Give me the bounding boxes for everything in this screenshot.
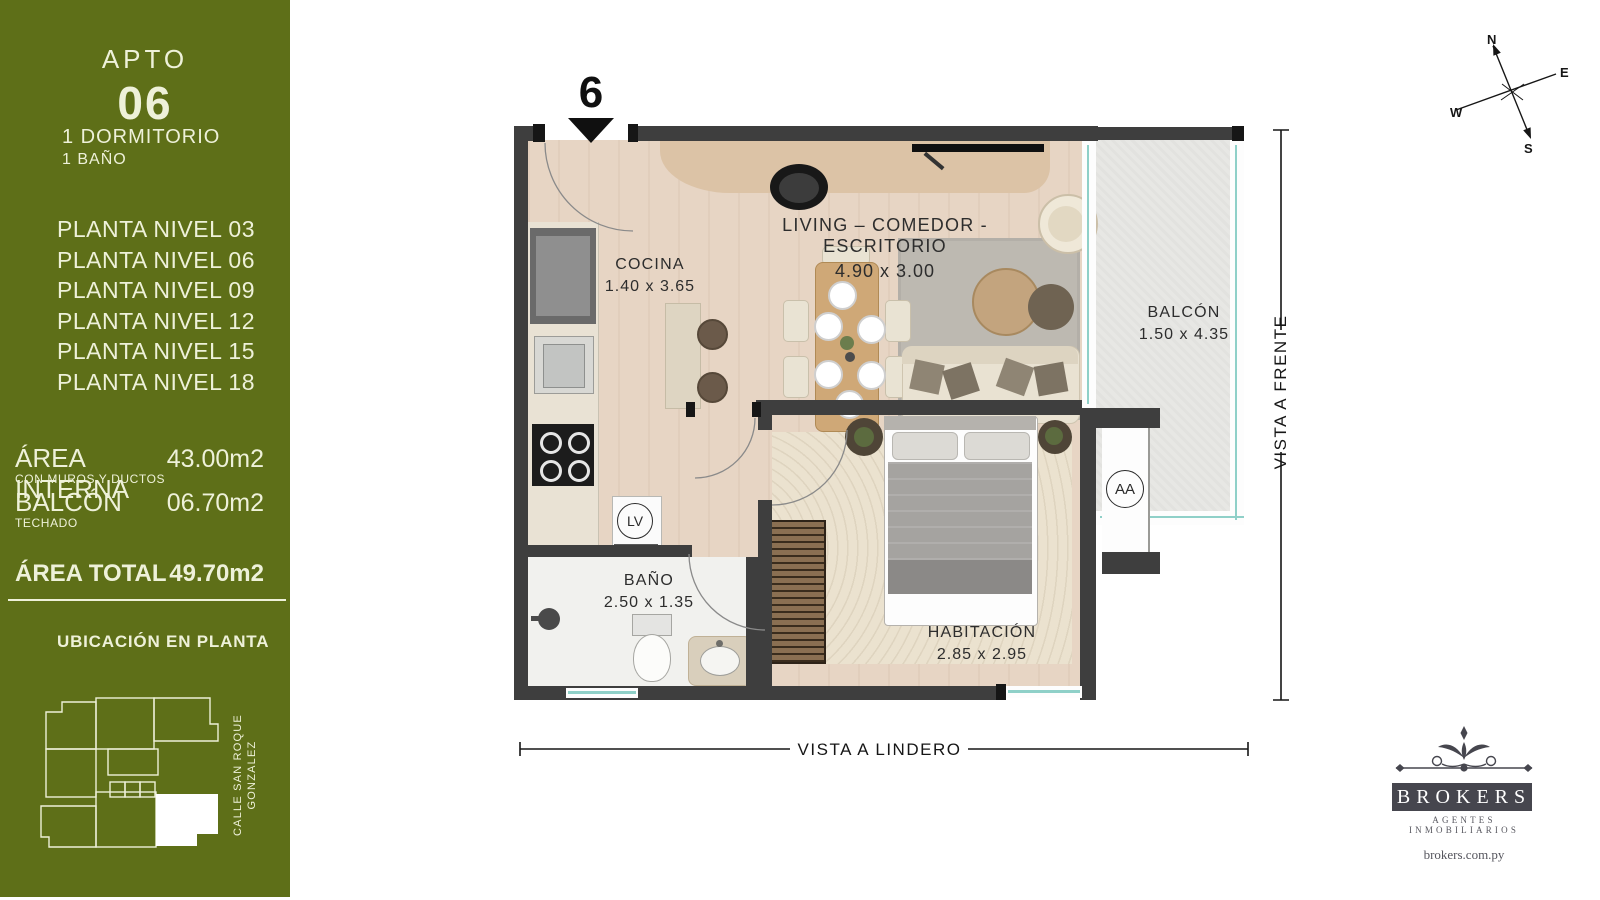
bath-count: 1 BAÑO <box>62 151 127 169</box>
label-bano: BAÑO 2.50 x 1.35 <box>584 572 714 612</box>
street-line1: CALLE SAN ROQUE <box>231 695 245 855</box>
compass-north-arrow-icon <box>1493 44 1501 56</box>
wall-ac-bottom <box>1102 552 1160 574</box>
compass-rose: N E W S <box>1450 32 1569 156</box>
hall-jamb <box>686 402 695 417</box>
bed-headboard <box>884 416 1036 430</box>
window-jamb <box>996 684 1006 700</box>
compass-s: S <box>1524 141 1533 156</box>
sofa-pillow <box>909 359 945 395</box>
bar-stool <box>697 372 728 403</box>
label-cocina: COCINA 1.40 x 3.65 <box>585 256 715 296</box>
balcon-row: BALCÓN 06.70m2 <box>0 487 290 518</box>
toilet-tank <box>632 614 672 636</box>
ac-badge: AA <box>1106 470 1144 508</box>
balcon-label: BALCÓN <box>15 487 122 518</box>
bar-stool <box>697 319 728 350</box>
burner <box>540 432 562 454</box>
area-total-value: 49.70m2 <box>169 560 264 588</box>
apto-number: 06 <box>0 76 290 130</box>
balcony-corner-cap <box>1232 126 1244 141</box>
fridge-top <box>536 236 590 316</box>
level-item: PLANTA NIVEL 15 <box>0 336 290 367</box>
burner <box>568 460 590 482</box>
dining-chair <box>783 356 809 398</box>
entry-jamb <box>533 124 545 142</box>
level-item: PLANTA NIVEL 03 <box>0 214 290 245</box>
wall-balcony-top <box>1098 127 1244 140</box>
level-list: PLANTA NIVEL 03 PLANTA NIVEL 06 PLANTA N… <box>0 214 290 397</box>
level-item: PLANTA NIVEL 12 <box>0 306 290 337</box>
balcony-glass-line <box>1087 145 1089 404</box>
street-label: CALLE SAN ROQUE GONZALEZ <box>231 695 261 855</box>
area-total-row: ÁREA TOTAL 49.70m2 <box>0 560 290 588</box>
room-name: COCINA <box>585 256 715 274</box>
wall-kitchen-bath <box>528 545 692 557</box>
dining-chair <box>885 300 911 342</box>
balcon-sub: TECHADO <box>0 516 78 530</box>
label-balcon: BALCÓN 1.50 x 4.35 <box>1114 304 1254 344</box>
pillow <box>892 432 958 460</box>
faucet <box>716 640 723 647</box>
area-interna-sub: CON MUROS Y DUCTOS <box>0 472 165 486</box>
street-line2: GONZALEZ <box>245 695 259 855</box>
toilet-bowl <box>633 634 671 682</box>
burner <box>568 432 590 454</box>
logo-name: BROKERS <box>1392 783 1532 811</box>
label-habitacion: HABITACIÓN 2.85 x 2.95 <box>902 624 1062 664</box>
sink-basin <box>543 344 585 388</box>
room-name: LIVING – COMEDOR - ESCRITORIO <box>730 215 1040 257</box>
entry-jamb <box>628 124 638 142</box>
room-name: HABITACIÓN <box>902 624 1062 642</box>
area-interna-value: 43.00m2 <box>167 445 264 474</box>
sofa-pillow <box>1034 362 1069 397</box>
wall-living-bedroom <box>756 400 1082 415</box>
kitchen-island <box>665 303 701 409</box>
building-minimap <box>33 694 233 858</box>
tv <box>912 144 1044 152</box>
bedroom-count: 1 DORMITORIO <box>62 126 220 149</box>
bath-window-line <box>568 691 636 694</box>
hall-jamb <box>752 402 761 417</box>
side-table <box>1028 284 1074 330</box>
logo-website: brokers.com.py <box>1392 847 1536 863</box>
room-dims: 2.50 x 1.35 <box>584 594 714 612</box>
room-dims: 4.90 x 3.00 <box>730 261 1040 282</box>
vista-lindero-label: VISTA A LINDERO <box>797 740 962 760</box>
balcony-glass-door <box>1082 141 1096 408</box>
bedroom-window-line <box>1008 690 1080 693</box>
room-dims: 1.50 x 4.35 <box>1114 326 1254 344</box>
plant <box>1045 427 1063 445</box>
sidebar: APTO 06 1 DORMITORIO 1 BAÑO PLANTA NIVEL… <box>0 0 290 897</box>
office-chair-seat <box>779 173 819 203</box>
plant <box>854 427 874 447</box>
label-living: LIVING – COMEDOR - ESCRITORIO 4.90 x 3.0… <box>730 215 1040 282</box>
compass-n: N <box>1487 32 1496 47</box>
room-name: BAÑO <box>584 572 714 590</box>
room-dims: 2.85 x 2.95 <box>902 646 1062 664</box>
burner <box>540 460 562 482</box>
table-plant <box>840 336 854 350</box>
compass-south-arrow-icon <box>1523 127 1531 139</box>
ubicacion-title: UBICACIÓN EN PLANTA <box>57 632 269 652</box>
level-item: PLANTA NIVEL 09 <box>0 275 290 306</box>
highlighted-unit <box>156 794 218 846</box>
table-decor <box>845 352 855 362</box>
vanity-sink <box>700 646 740 676</box>
vista-frente-label: VISTA A FRENTE <box>1271 312 1291 472</box>
wall-hall-bedroom-b <box>758 500 772 686</box>
sidebar-divider <box>8 599 286 601</box>
wall-bath-right <box>746 557 758 686</box>
wall-hall-bedroom-a <box>758 415 772 430</box>
dining-chair <box>783 300 809 342</box>
shower-arm <box>531 616 543 621</box>
unit-number: 6 <box>558 68 624 118</box>
entry-arrow-icon <box>568 118 614 143</box>
level-item: PLANTA NIVEL 18 <box>0 367 290 398</box>
slat-wardrobe <box>766 520 826 664</box>
wall-left <box>514 126 528 700</box>
brokers-logo: BROKERS AGENTES INMOBILIARIOS brokers.co… <box>1392 726 1536 863</box>
room-dims: 1.40 x 3.65 <box>585 278 715 296</box>
plate <box>814 312 843 341</box>
level-item: PLANTA NIVEL 06 <box>0 245 290 276</box>
logo-tagline: AGENTES INMOBILIARIOS <box>1392 815 1536 835</box>
wall-ac-top <box>1080 408 1160 428</box>
laundry-badge: LV <box>617 503 653 539</box>
wall-bedroom-right <box>1080 415 1096 700</box>
armchair-seat <box>1048 206 1084 242</box>
room-name: BALCÓN <box>1114 304 1254 322</box>
floorplan-page: APTO 06 1 DORMITORIO 1 BAÑO PLANTA NIVEL… <box>0 0 1600 900</box>
wall-top <box>630 126 1098 141</box>
balcon-value: 06.70m2 <box>167 489 264 518</box>
logo-flourish-icon <box>1392 726 1536 776</box>
compass-e: E <box>1560 65 1569 80</box>
plate <box>857 361 886 390</box>
pillow <box>964 432 1030 460</box>
plate <box>814 360 843 389</box>
plate <box>857 315 886 344</box>
apto-label: APTO <box>0 44 290 75</box>
plate <box>828 281 857 310</box>
bed-throw <box>888 560 1032 594</box>
compass-w: W <box>1450 105 1463 120</box>
area-total-label: ÁREA TOTAL <box>15 560 167 588</box>
